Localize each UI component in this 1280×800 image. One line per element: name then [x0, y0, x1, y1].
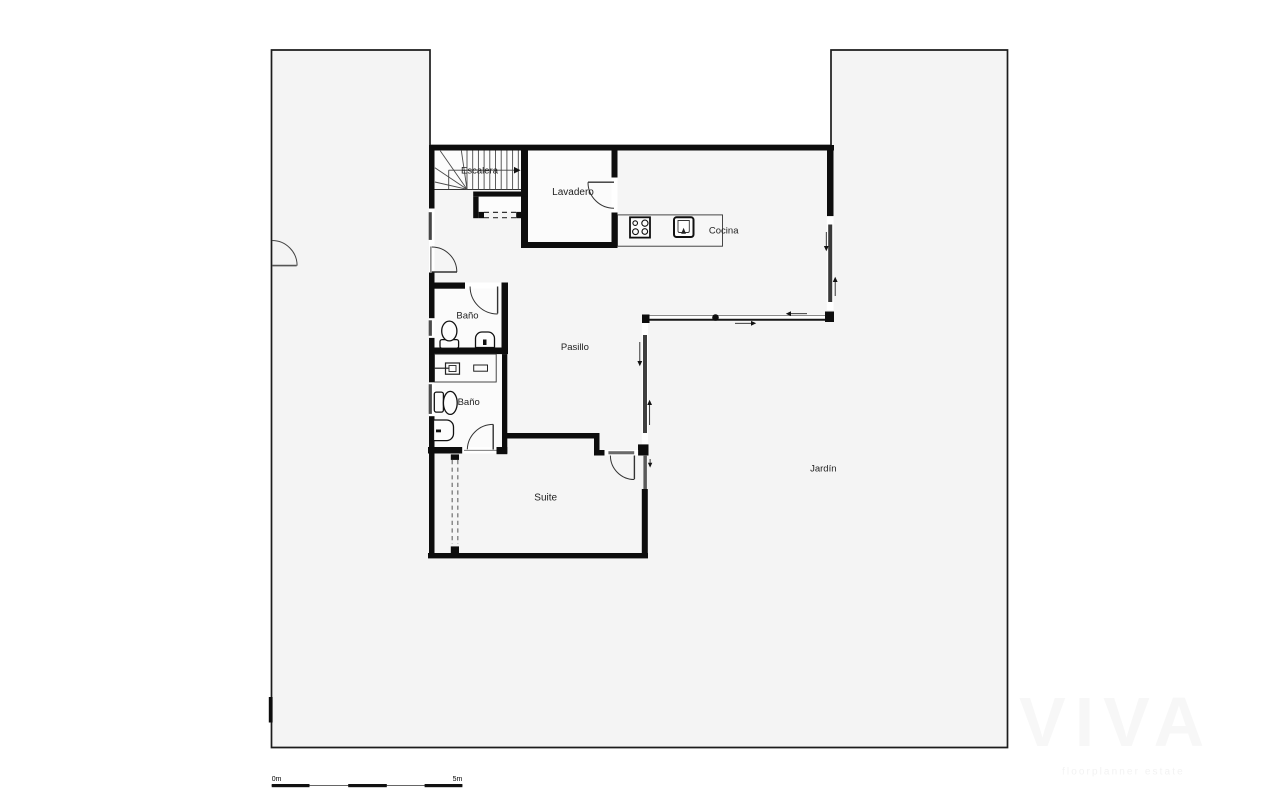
svg-text:Pasillo: Pasillo	[561, 342, 589, 353]
svg-text:Jardín: Jardín	[810, 464, 836, 475]
svg-text:Baño: Baño	[458, 397, 480, 408]
svg-text:5m: 5m	[453, 776, 463, 783]
svg-text:Cocina: Cocina	[709, 225, 739, 236]
svg-text:Baño: Baño	[456, 311, 478, 322]
svg-text:Suite: Suite	[534, 493, 557, 504]
svg-text:Escalera: Escalera	[461, 166, 499, 177]
svg-text:floorplanner estate: floorplanner estate	[1062, 767, 1185, 778]
svg-text:VIVA: VIVA	[1019, 683, 1213, 761]
svg-text:0m: 0m	[272, 776, 282, 783]
svg-text:Lavadero: Lavadero	[552, 187, 594, 198]
